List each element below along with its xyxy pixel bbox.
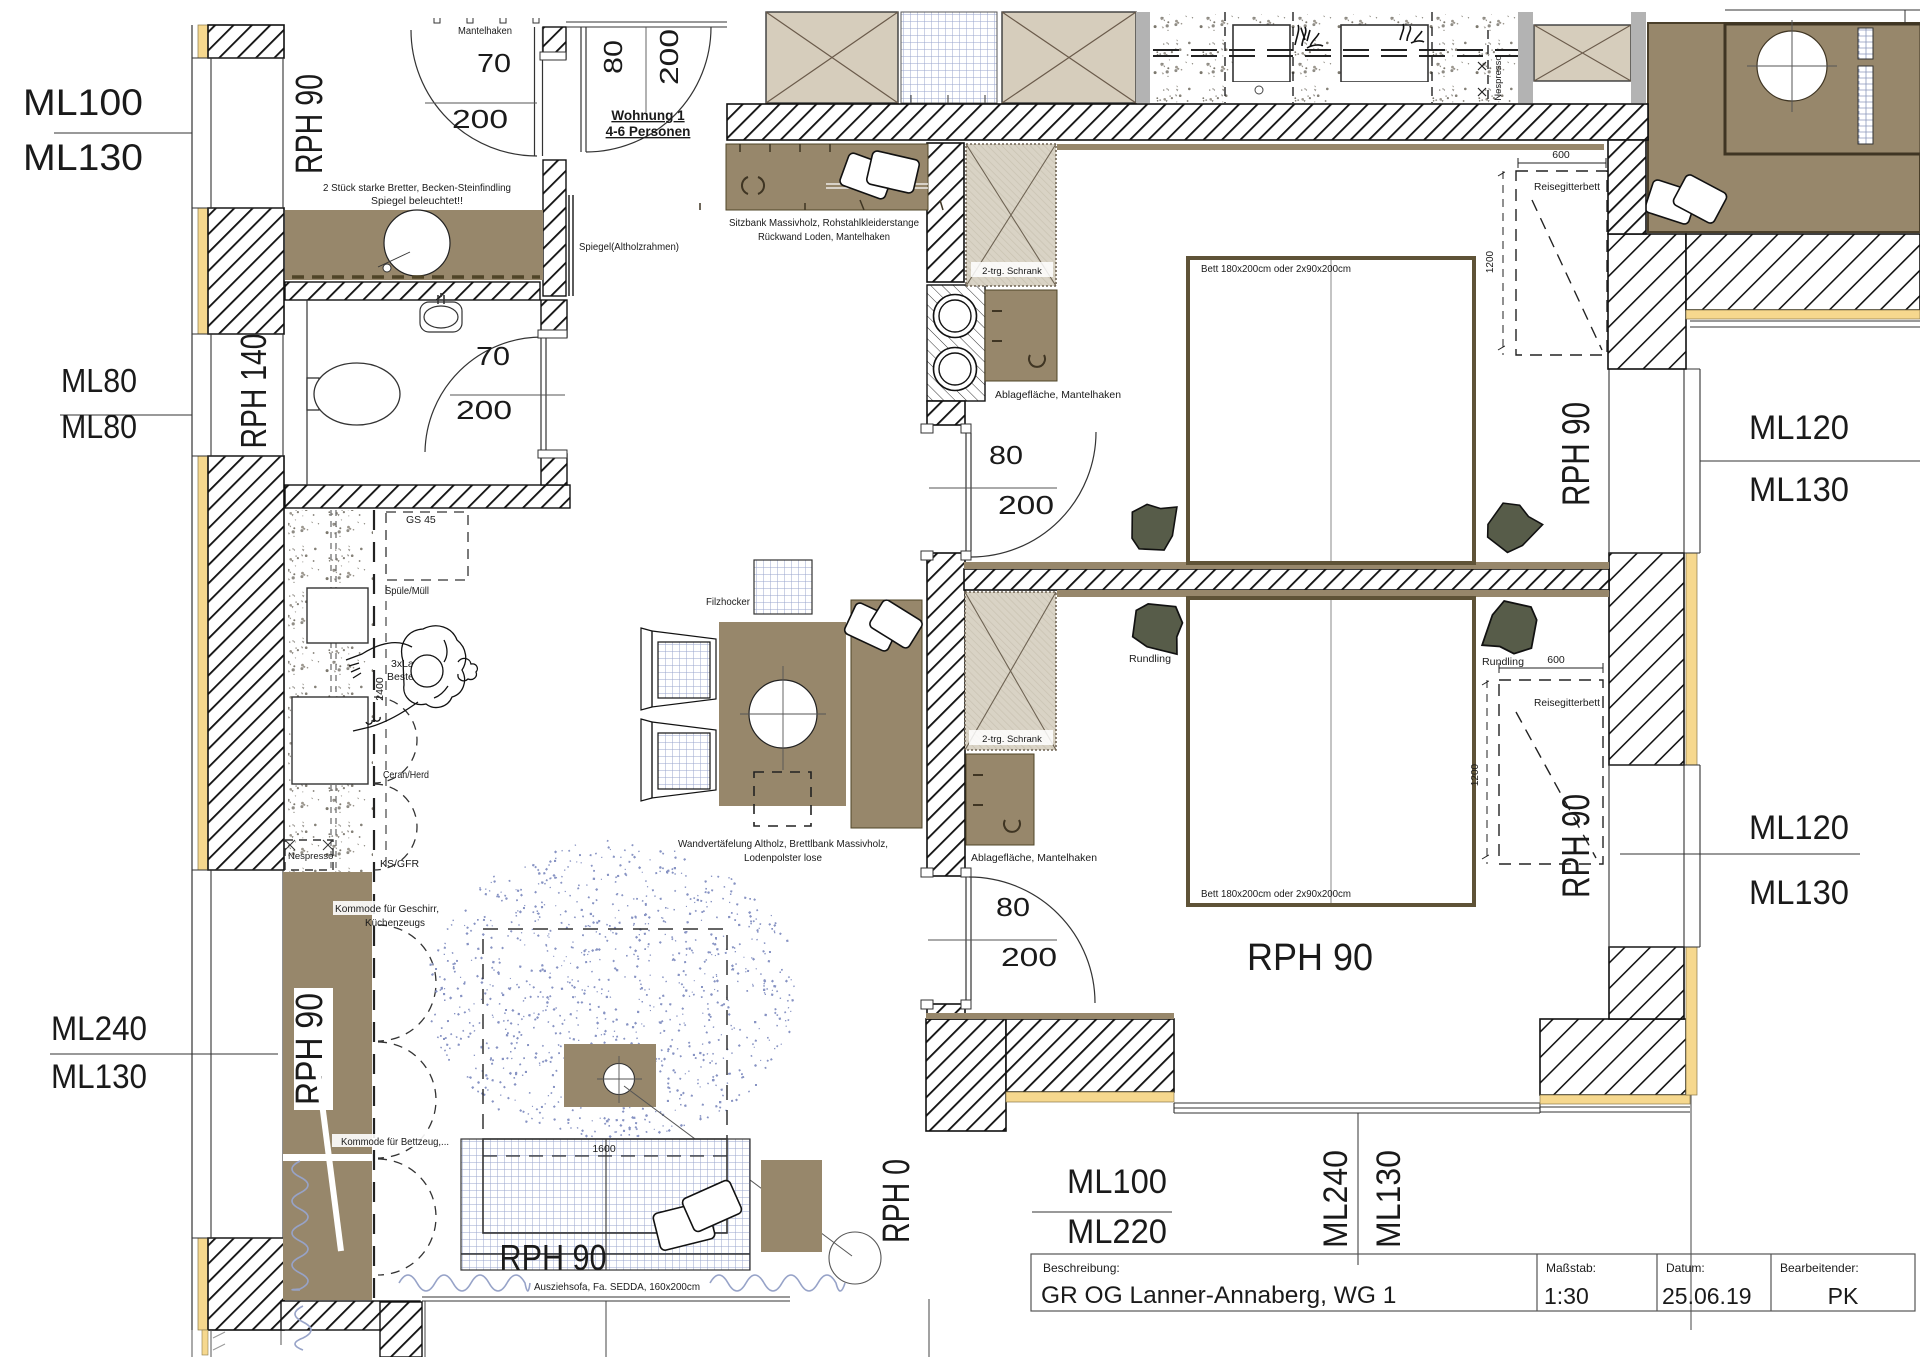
svg-text:Spüle/Müll: Spüle/Müll <box>385 585 429 597</box>
svg-text:4-6 Personen: 4-6 Personen <box>606 124 691 139</box>
svg-text:1600: 1600 <box>592 1143 616 1155</box>
svg-text:RPH 90: RPH 90 <box>1247 937 1373 979</box>
svg-text:ML130: ML130 <box>51 1058 147 1096</box>
svg-text:ML130: ML130 <box>1749 471 1849 509</box>
svg-text:ML120: ML120 <box>1749 809 1849 847</box>
svg-text:2-trg. Schrank: 2-trg. Schrank <box>982 266 1042 277</box>
svg-text:ML80: ML80 <box>61 362 137 399</box>
svg-text:ML220: ML220 <box>1067 1213 1167 1251</box>
svg-text:1200: 1200 <box>1485 250 1496 273</box>
svg-text:ML80: ML80 <box>61 408 137 445</box>
svg-text:200: 200 <box>998 490 1054 520</box>
svg-text:Spiegel(Altholzrahmen): Spiegel(Altholzrahmen) <box>579 241 679 253</box>
svg-text:Datum:: Datum: <box>1666 1261 1705 1275</box>
svg-text:Rundling: Rundling <box>1482 657 1524 668</box>
svg-text:RPH 0: RPH 0 <box>876 1159 918 1243</box>
svg-text:PK: PK <box>1828 1283 1859 1309</box>
svg-text:70: 70 <box>476 341 510 371</box>
svg-text:Ausziehsofa, Fa. SEDDA, 160x20: Ausziehsofa, Fa. SEDDA, 160x200cm <box>534 1281 700 1293</box>
svg-text:Lodenpolster lose: Lodenpolster lose <box>744 852 822 864</box>
svg-text:1200: 1200 <box>1470 763 1481 786</box>
svg-text:Ceran/Herd: Ceran/Herd <box>383 769 429 781</box>
svg-text:2-trg. Schrank: 2-trg. Schrank <box>982 734 1042 745</box>
svg-text:ML120: ML120 <box>1749 409 1849 447</box>
svg-text:GR OG Lanner-Annaberg, WG 1: GR OG Lanner-Annaberg, WG 1 <box>1041 1282 1396 1309</box>
svg-text:Kommode für Geschirr,: Kommode für Geschirr, <box>335 903 439 915</box>
svg-text:Kommode für Bettzeug,...: Kommode für Bettzeug,... <box>341 1136 449 1148</box>
svg-text:Rundling: Rundling <box>1129 654 1171 665</box>
svg-text:600: 600 <box>1547 654 1565 666</box>
svg-text:Beschreibung:: Beschreibung: <box>1043 1261 1120 1275</box>
svg-text:200: 200 <box>456 395 512 425</box>
svg-text:KS/GFR: KS/GFR <box>380 858 420 870</box>
svg-text:ML130: ML130 <box>1370 1150 1408 1248</box>
svg-text:70: 70 <box>477 48 511 78</box>
svg-text:1:30: 1:30 <box>1544 1283 1589 1309</box>
svg-text:RPH 90: RPH 90 <box>289 993 331 1105</box>
svg-text:ML130: ML130 <box>23 137 143 178</box>
svg-text:600: 600 <box>1552 149 1570 161</box>
svg-text:80: 80 <box>598 40 628 74</box>
svg-text:Ablagefläche, Mantelhaken: Ablagefläche, Mantelhaken <box>995 389 1121 401</box>
svg-text:RPH 90: RPH 90 <box>500 1237 607 1278</box>
svg-text:RPH 140: RPH 140 <box>233 334 274 449</box>
svg-text:Wandvertäfelung Altholz, Brett: Wandvertäfelung Altholz, Brettlbank Mass… <box>678 838 888 850</box>
svg-text:Wohnung 1: Wohnung 1 <box>611 108 685 123</box>
svg-text:80: 80 <box>996 892 1030 922</box>
svg-text:ML100: ML100 <box>1067 1163 1167 1201</box>
svg-text:Nespresso: Nespresso <box>1493 55 1504 100</box>
svg-text:Maßstab:: Maßstab: <box>1546 1261 1596 1275</box>
svg-text:ML130: ML130 <box>1749 874 1849 912</box>
svg-text:Reisegitterbett: Reisegitterbett <box>1534 697 1600 709</box>
svg-text:200: 200 <box>654 29 684 85</box>
svg-text:200: 200 <box>452 104 508 134</box>
svg-text:200: 200 <box>1001 942 1057 972</box>
svg-text:Bett 180x200cm oder 2x90x200cm: Bett 180x200cm oder 2x90x200cm <box>1201 888 1351 900</box>
svg-text:Bett 180x200cm oder 2x90x200cm: Bett 180x200cm oder 2x90x200cm <box>1201 263 1351 275</box>
svg-text:Sitzbank Massivholz, Rohstahlk: Sitzbank Massivholz, Rohstahlkleiderstan… <box>729 217 919 229</box>
svg-text:Filzhocker: Filzhocker <box>706 596 750 608</box>
svg-text:Küchenzeugs: Küchenzeugs <box>365 917 425 929</box>
svg-text:ML100: ML100 <box>23 82 143 123</box>
svg-text:GS 45: GS 45 <box>406 514 436 526</box>
svg-text:Spiegel beleuchtet!!: Spiegel beleuchtet!! <box>371 195 463 207</box>
svg-text:80: 80 <box>989 440 1023 470</box>
svg-text:RPH 90: RPH 90 <box>289 74 331 174</box>
svg-text:25.06.19: 25.06.19 <box>1662 1283 1752 1309</box>
svg-text:RPH 90: RPH 90 <box>1555 794 1598 898</box>
svg-text:Rückwand Loden, Mantelhaken: Rückwand Loden, Mantelhaken <box>758 231 890 243</box>
svg-text:Ablagefläche, Mantelhaken: Ablagefläche, Mantelhaken <box>971 852 1097 864</box>
svg-text:ML240: ML240 <box>1317 1150 1355 1248</box>
svg-text:2 Stück starke Bretter, Becken: 2 Stück starke Bretter, Becken-Steinfind… <box>323 182 511 194</box>
svg-text:Bearbeitender:: Bearbeitender: <box>1780 1261 1859 1275</box>
svg-text:ML240: ML240 <box>51 1010 147 1048</box>
svg-text:Mantelhaken: Mantelhaken <box>458 26 512 37</box>
svg-text:Nespresso: Nespresso <box>288 851 333 862</box>
svg-text:RPH 90: RPH 90 <box>1555 402 1598 506</box>
svg-text:Reisegitterbett: Reisegitterbett <box>1534 181 1600 193</box>
